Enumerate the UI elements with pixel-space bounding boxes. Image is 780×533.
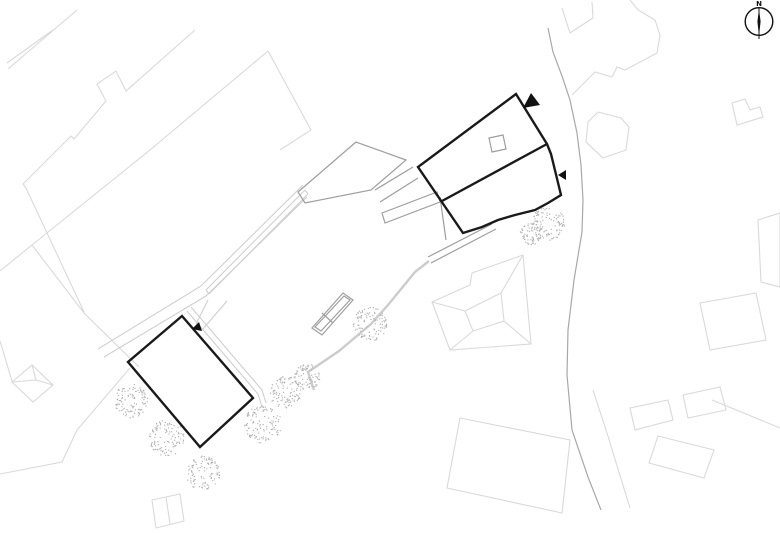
site-plan-canvas: N [0, 0, 780, 533]
site-plan-svg: N [0, 0, 780, 533]
plan-background [0, 0, 780, 533]
north-label: N [756, 0, 762, 8]
